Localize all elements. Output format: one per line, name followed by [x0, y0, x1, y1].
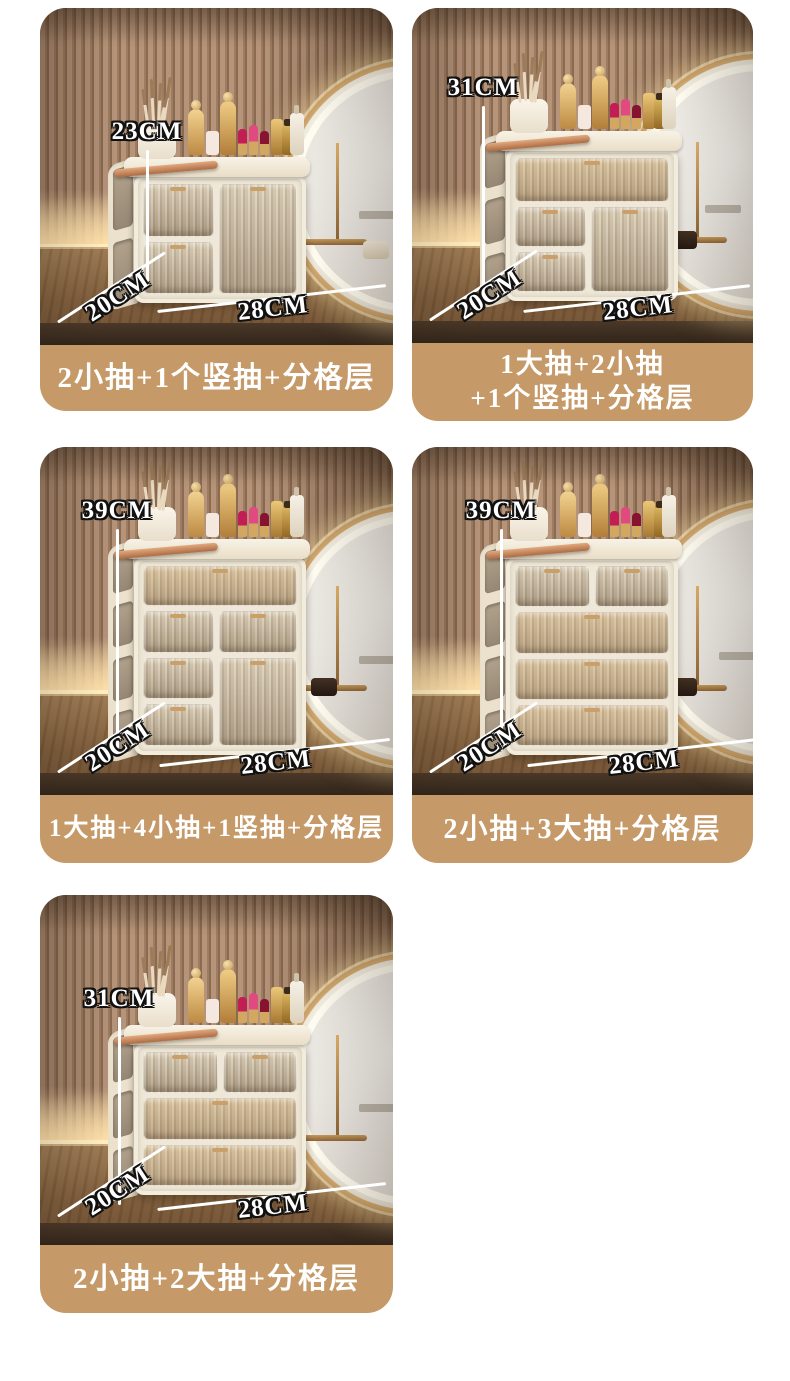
lipstick: [632, 513, 641, 537]
cosmetics-on-top: [136, 471, 304, 541]
mirror-stand: [696, 586, 699, 687]
mirror-stand: [336, 143, 339, 241]
perfume-bottle: [220, 101, 236, 155]
cosmetics-on-top: [136, 957, 304, 1027]
vertical-drawer: [591, 207, 669, 292]
cosmetic-jar: [206, 513, 219, 537]
lipstick: [621, 507, 630, 537]
lipstick: [621, 99, 630, 129]
variant-card-4: 39CM 28CM 20CM 2小抽+3大抽+分格层: [412, 447, 753, 863]
product-photo-5: 31CM 28CM 20CM: [40, 895, 393, 1245]
height-dimension: 39CM: [80, 497, 154, 751]
vertical-drawer: [219, 184, 297, 294]
small-drawer: [223, 1052, 298, 1093]
config-caption-2: 1大抽+2小抽 +1个竖抽+分格层: [412, 343, 753, 421]
perfume-bottle: [188, 109, 204, 155]
product-size-showcase: 23CM 28CM 20CM 2小抽+1个竖抽+分格层: [0, 0, 790, 1381]
variant-card-5: 31CM 28CM 20CM 2小抽+2大抽+分格层: [40, 895, 393, 1313]
height-dimension-label: 31CM: [448, 74, 519, 102]
pump-bottle: [662, 87, 676, 129]
lipstick: [260, 513, 269, 537]
height-dimension: 23CM: [110, 118, 184, 286]
perfume-bottle: [560, 83, 576, 129]
height-dimension-line: [500, 529, 503, 751]
perfume-bottle: [188, 491, 204, 537]
cosmetic-jar: [206, 999, 219, 1023]
dark-jar: [311, 678, 337, 696]
height-dimension-label: 31CM: [84, 985, 155, 1013]
cream-jar: [363, 241, 389, 259]
perfume-bottle: [188, 977, 204, 1023]
mirror-stand: [336, 586, 339, 687]
product-photo-3: 39CM 28CM 20CM: [40, 447, 393, 795]
large-drawer: [143, 1098, 297, 1139]
lipstick: [238, 129, 247, 155]
pump-bottle: [290, 981, 304, 1023]
lipstick: [260, 999, 269, 1023]
large-drawer: [515, 659, 669, 700]
lipstick: [610, 103, 619, 129]
variant-card-2: 31CM 28CM 20CM 1大抽+2小抽 +1个竖抽+分格层: [412, 8, 753, 421]
height-dimension-line: [482, 106, 485, 302]
variant-card-3: 39CM 28CM 20CM 1大抽+4小抽+1竖抽+分格层: [40, 447, 393, 863]
lipstick: [249, 507, 258, 537]
small-drawer: [515, 207, 586, 247]
cosmetic-jar: [578, 105, 591, 129]
lipstick: [610, 511, 619, 537]
pump-bottle: [290, 495, 304, 537]
mirror-stand: [336, 1035, 339, 1137]
config-caption-5: 2小抽+2大抽+分格层: [40, 1245, 393, 1313]
perfume-bottle: [220, 969, 236, 1023]
height-dimension-label: 39CM: [466, 497, 537, 525]
small-drawer: [219, 611, 297, 653]
product-photo-1: 23CM 28CM 20CM: [40, 8, 393, 345]
variant-card-1: 23CM 28CM 20CM 2小抽+1个竖抽+分格层: [40, 8, 393, 411]
product-photo-2: 31CM 28CM 20CM: [412, 8, 753, 343]
large-drawer: [143, 566, 297, 606]
small-drawer: [595, 566, 670, 607]
perfume-bottle: [592, 75, 608, 129]
config-caption-3: 1大抽+4小抽+1竖抽+分格层: [40, 795, 393, 863]
lipstick: [260, 131, 269, 155]
large-drawer: [515, 158, 669, 202]
perfume-bottle: [220, 483, 236, 537]
lipstick: [238, 997, 247, 1023]
cosmetic-jar: [206, 131, 219, 155]
product-photo-4: 39CM 28CM 20CM: [412, 447, 753, 795]
pump-bottle: [290, 113, 304, 155]
lipstick: [632, 105, 641, 129]
lipstick: [249, 125, 258, 155]
pump-bottle: [662, 495, 676, 537]
perfume-bottle: [560, 491, 576, 537]
height-dimension-label: 39CM: [82, 497, 153, 525]
cosmetics-on-top: [508, 63, 676, 133]
lipstick: [249, 993, 258, 1023]
mirror-stand: [696, 142, 699, 239]
height-dimension-label: 23CM: [112, 118, 183, 146]
vertical-drawer: [219, 658, 297, 746]
cosmetic-jar: [578, 513, 591, 537]
height-dimension-line: [116, 529, 119, 751]
config-caption-1: 2小抽+1个竖抽+分格层: [40, 345, 393, 411]
lipstick: [238, 511, 247, 537]
perfume-bottle: [592, 483, 608, 537]
large-drawer: [515, 612, 669, 653]
config-caption-4: 2小抽+3大抽+分格层: [412, 795, 753, 863]
